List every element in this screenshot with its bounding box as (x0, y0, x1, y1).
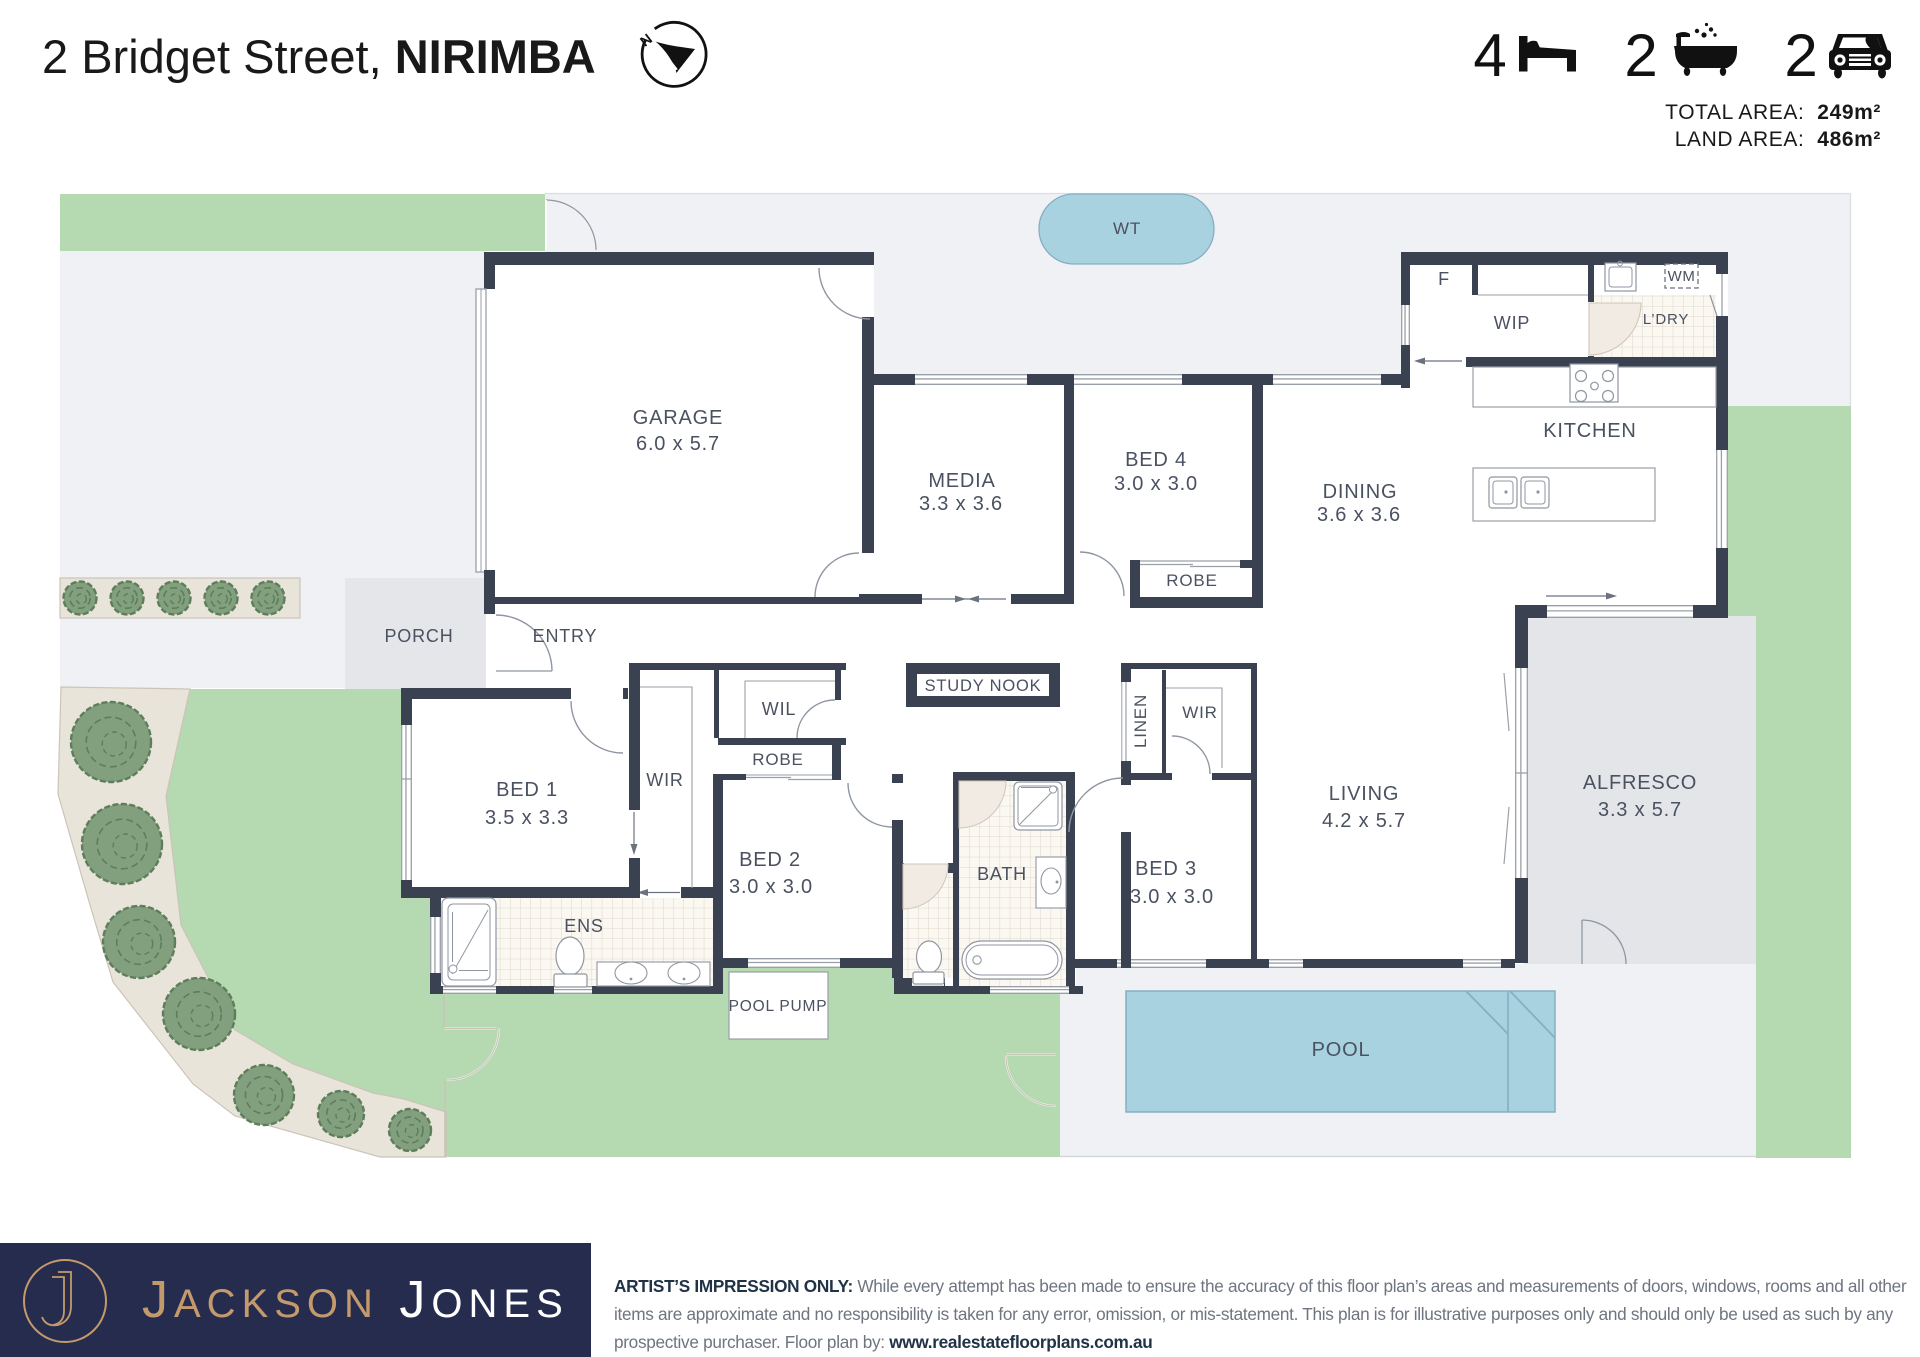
svg-text:ROBE: ROBE (1166, 571, 1217, 590)
svg-text:2: 2 (1624, 22, 1657, 89)
svg-text:ALFRESCO: ALFRESCO (1583, 772, 1697, 794)
svg-text:3.3 x 5.7: 3.3 x 5.7 (1598, 799, 1682, 821)
svg-text:N: N (638, 31, 656, 50)
svg-text:LIVING: LIVING (1329, 783, 1399, 805)
svg-text:6.0 x 5.7: 6.0 x 5.7 (636, 433, 720, 455)
svg-text:L’DRY: L’DRY (1643, 311, 1689, 328)
svg-text:BED 3: BED 3 (1135, 858, 1197, 880)
svg-text:MEDIA: MEDIA (928, 470, 995, 492)
svg-text:ENS: ENS (564, 916, 603, 936)
svg-text:ENTRY: ENTRY (533, 626, 598, 646)
svg-text:items are approximate and no r: items are approximate and no responsibil… (614, 1304, 1894, 1324)
svg-text:3.0 x 3.0: 3.0 x 3.0 (729, 876, 813, 898)
svg-text:ARTIST’S IMPRESSION ONLY: Whil: ARTIST’S IMPRESSION ONLY: While every at… (614, 1276, 1907, 1296)
svg-text:4: 4 (1473, 22, 1506, 89)
svg-text:prospective purchaser. Floor p: prospective purchaser. Floor plan by: ww… (614, 1332, 1152, 1352)
svg-text:POOL: POOL (1312, 1039, 1371, 1061)
svg-text:3.3 x 3.6: 3.3 x 3.6 (919, 493, 1003, 515)
svg-text:WIR: WIR (646, 770, 683, 790)
svg-text:GARAGE: GARAGE (633, 407, 723, 429)
svg-text:3.0 x 3.0: 3.0 x 3.0 (1130, 886, 1214, 908)
svg-text:BED 2: BED 2 (739, 849, 801, 871)
svg-text:WIL: WIL (762, 699, 796, 719)
svg-text:PORCH: PORCH (384, 626, 453, 646)
svg-text:ROBE: ROBE (752, 750, 803, 769)
svg-text:WT: WT (1113, 219, 1141, 238)
svg-text:DINING: DINING (1323, 481, 1398, 503)
svg-text:TOTAL AREA: 249m²: TOTAL AREA: 249m² (1665, 101, 1881, 124)
svg-text:LINEN: LINEN (1131, 694, 1150, 748)
svg-text:POOL PUMP: POOL PUMP (729, 998, 828, 1015)
svg-text:WIP: WIP (1494, 313, 1530, 333)
svg-text:BATH: BATH (977, 864, 1027, 884)
svg-text:3.6 x 3.6: 3.6 x 3.6 (1317, 504, 1401, 526)
svg-text:STUDY NOOK: STUDY NOOK (925, 677, 1042, 695)
svg-text:KITCHEN: KITCHEN (1543, 420, 1636, 442)
svg-text:BED 4: BED 4 (1125, 449, 1187, 471)
svg-text:WIR: WIR (1182, 703, 1217, 722)
svg-text:WM: WM (1668, 268, 1696, 285)
svg-text:LAND AREA: 486m²: LAND AREA: 486m² (1675, 128, 1881, 151)
svg-text:F: F (1438, 269, 1450, 289)
svg-text:3.0 x 3.0: 3.0 x 3.0 (1114, 473, 1198, 495)
svg-text:2: 2 (1784, 22, 1817, 89)
svg-text:3.5 x 3.3: 3.5 x 3.3 (485, 807, 569, 829)
svg-text:BED 1: BED 1 (496, 779, 558, 801)
svg-text:4.2 x 5.7: 4.2 x 5.7 (1322, 810, 1406, 832)
svg-text:2 Bridget Street, NIRIMBA: 2 Bridget Street, NIRIMBA (42, 30, 596, 83)
